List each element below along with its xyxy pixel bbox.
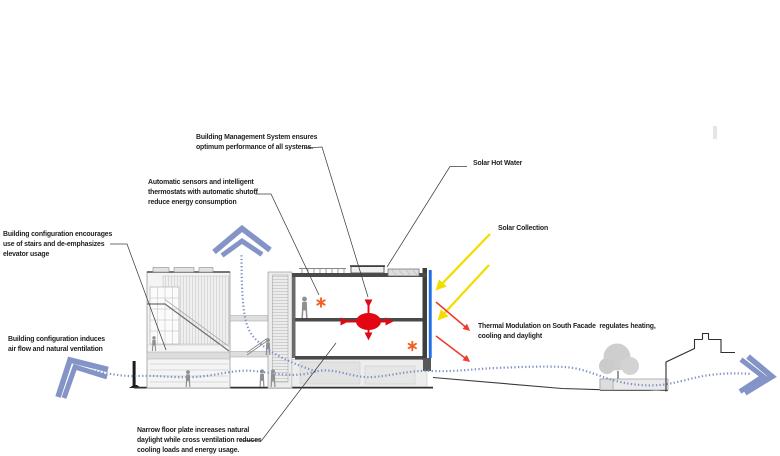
annotation-line: Solar Collection bbox=[498, 224, 548, 234]
annotation-bms: Building Management System ensures optim… bbox=[196, 133, 317, 153]
annotation-line: Building configuration encourages bbox=[3, 230, 112, 240]
annotation-line: Thermal Modulation on South Facade regul… bbox=[478, 322, 656, 332]
building-section-drawing bbox=[0, 0, 780, 456]
left-stair-tower bbox=[147, 268, 230, 389]
neighbor-house-outline bbox=[666, 334, 735, 392]
solar-hot-water-leader-line bbox=[387, 167, 467, 268]
diagram-canvas: Building Management System ensures optim… bbox=[0, 0, 780, 456]
annotation-line: use of stairs and de-emphasizes bbox=[3, 240, 112, 250]
annotation-narrow-floor: Narrow floor plate increases natural day… bbox=[137, 426, 262, 456]
annotation-thermal: Thermal Modulation on South Facade regul… bbox=[478, 322, 656, 342]
annotation-line: Solar Hot Water bbox=[473, 159, 522, 169]
annotation-line: cooling loads and energy usage. bbox=[137, 446, 262, 456]
annotation-sensors: Automatic sensors and intelligent thermo… bbox=[148, 178, 258, 208]
annotation-line: elevator usage bbox=[3, 250, 112, 260]
site-wall bbox=[600, 379, 668, 390]
thermal-mass-ellipse bbox=[356, 313, 381, 330]
roof-solar-collector bbox=[388, 269, 419, 276]
chevron-up-icon bbox=[214, 229, 270, 256]
south-facade-line bbox=[429, 270, 432, 358]
site-post bbox=[129, 361, 141, 388]
annotation-line: Automatic sensors and intelligent bbox=[148, 178, 258, 188]
solar-ray-arrows bbox=[437, 234, 490, 319]
annotation-solar-collection: Solar Collection bbox=[498, 224, 548, 234]
annotation-solar-hot-water: Solar Hot Water bbox=[473, 159, 522, 169]
roof-railing bbox=[299, 269, 346, 274]
annotation-line: daylight while cross ventilation reduces bbox=[137, 436, 262, 446]
faint-tick bbox=[713, 126, 717, 139]
chevron-left-icon bbox=[58, 360, 108, 398]
atrium-gap bbox=[230, 316, 268, 358]
chevron-right-icon bbox=[740, 357, 772, 394]
annotation-stairs: Building configuration encourages use of… bbox=[3, 230, 112, 260]
annotation-line: air flow and natural ventilation bbox=[8, 345, 105, 355]
window-grid bbox=[150, 287, 179, 344]
annotation-line: Building configuration induces bbox=[8, 335, 105, 345]
thermal-arrows bbox=[436, 302, 469, 361]
annotation-line: Narrow floor plate increases natural bbox=[137, 426, 262, 436]
annotation-line: thermostats with automatic shutoff bbox=[148, 188, 258, 198]
annotation-line: optimum performance of all systems. bbox=[196, 143, 317, 153]
annotation-line: Building Management System ensures bbox=[196, 133, 317, 143]
annotation-line: reduce energy consumption bbox=[148, 198, 258, 208]
annotation-line: cooling and daylight bbox=[478, 332, 656, 342]
annotation-airflow: Building configuration induces air flow … bbox=[8, 335, 105, 355]
roof-skylight bbox=[350, 266, 385, 273]
